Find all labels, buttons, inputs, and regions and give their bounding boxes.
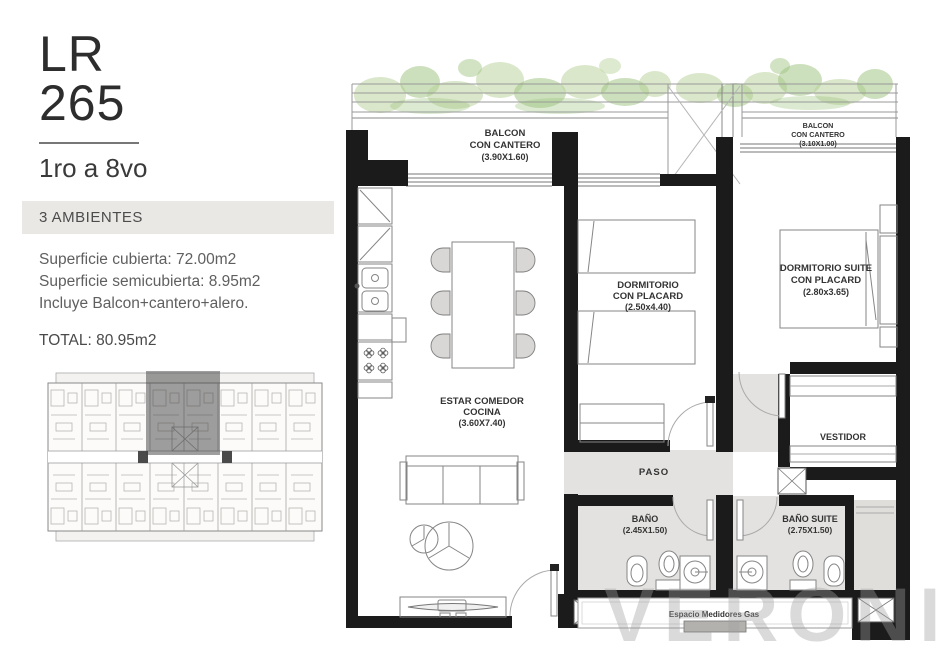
svg-text:CON PLACARD: CON PLACARD — [791, 275, 861, 286]
svg-text:(2.45X1.50): (2.45X1.50) — [623, 525, 668, 535]
vestidor-shelving — [790, 376, 896, 462]
suite-door — [779, 374, 785, 418]
label-paso: PASO — [639, 467, 669, 478]
svg-text:(3.10X1.00): (3.10X1.00) — [799, 139, 837, 148]
ambientes-badge: 3 AMBIENTES — [22, 201, 334, 234]
bed-single-2 — [578, 311, 695, 364]
bathroom-door — [707, 500, 713, 540]
suite-bathroom-door — [737, 500, 743, 540]
surface-includes: Incluye Balcon+cantero+alero. — [39, 293, 334, 315]
surface-semicovered: Superficie semicubierta: 8.95m2 — [39, 271, 334, 293]
label-balcon-left: BALCON — [485, 128, 526, 139]
divider-rule — [39, 142, 139, 144]
bedroom-door — [707, 402, 713, 446]
living-furniture — [400, 456, 524, 617]
bed-single-1 — [578, 220, 695, 273]
label-bano-suite: BAÑO SUITE — [782, 514, 838, 524]
dining-set — [431, 242, 535, 368]
label-vestidor: VESTIDOR — [820, 432, 867, 442]
svg-text:(2.50x4.40): (2.50x4.40) — [625, 302, 671, 312]
svg-text:CON PLACARD: CON PLACARD — [613, 291, 683, 302]
svg-text:CON CANTERO: CON CANTERO — [470, 140, 541, 151]
svg-text:(3.90X1.60): (3.90X1.60) — [481, 152, 528, 162]
sofa — [406, 456, 518, 504]
bedroom-furniture — [578, 220, 695, 442]
kitchen-stove — [358, 342, 392, 380]
svg-text:(2.75X1.50): (2.75X1.50) — [788, 525, 833, 535]
total-surface: TOTAL: 80.95m2 — [39, 332, 334, 350]
label-estar: ESTAR COMEDOR — [440, 396, 524, 407]
unit-code-line2: 265 — [39, 79, 334, 128]
svg-text:(2.80x3.65): (2.80x3.65) — [803, 287, 849, 297]
keyplan-bottom-balconies — [56, 531, 314, 541]
watermark: VERONIC — [604, 572, 947, 659]
planter-foliage — [354, 58, 893, 114]
surface-covered: Superficie cubierta: 72.00m2 — [39, 249, 334, 271]
building-keyplan — [42, 369, 328, 545]
entry-door — [551, 570, 557, 616]
keyplan-highlighted-unit — [146, 371, 220, 455]
svg-text:(3.60X7.40): (3.60X7.40) — [458, 418, 505, 428]
info-panel: LR 265 1ro a 8vo 3 AMBIENTES Superficie … — [22, 30, 334, 545]
svg-text:CON CANTERO: CON CANTERO — [791, 130, 845, 139]
floors-range: 1ro a 8vo — [39, 153, 334, 184]
surface-info: Superficie cubierta: 72.00m2 Superficie … — [39, 249, 334, 315]
unit-code: LR 265 — [39, 30, 334, 128]
floor-plan-sheet: LR 265 1ro a 8vo 3 AMBIENTES Superficie … — [0, 0, 947, 670]
kitchen-units — [355, 188, 407, 398]
label-bano: BAÑO — [632, 514, 659, 524]
unit-code-line1: LR — [39, 30, 334, 79]
keyplan-core — [222, 451, 232, 463]
label-dormitorio-suite: DORMITORIO SUITE — [780, 263, 872, 274]
label-balcon-right: BALCON — [803, 121, 834, 130]
label-dormitorio: DORMITORIO — [617, 280, 679, 291]
svg-text:COCINA: COCINA — [463, 407, 501, 418]
